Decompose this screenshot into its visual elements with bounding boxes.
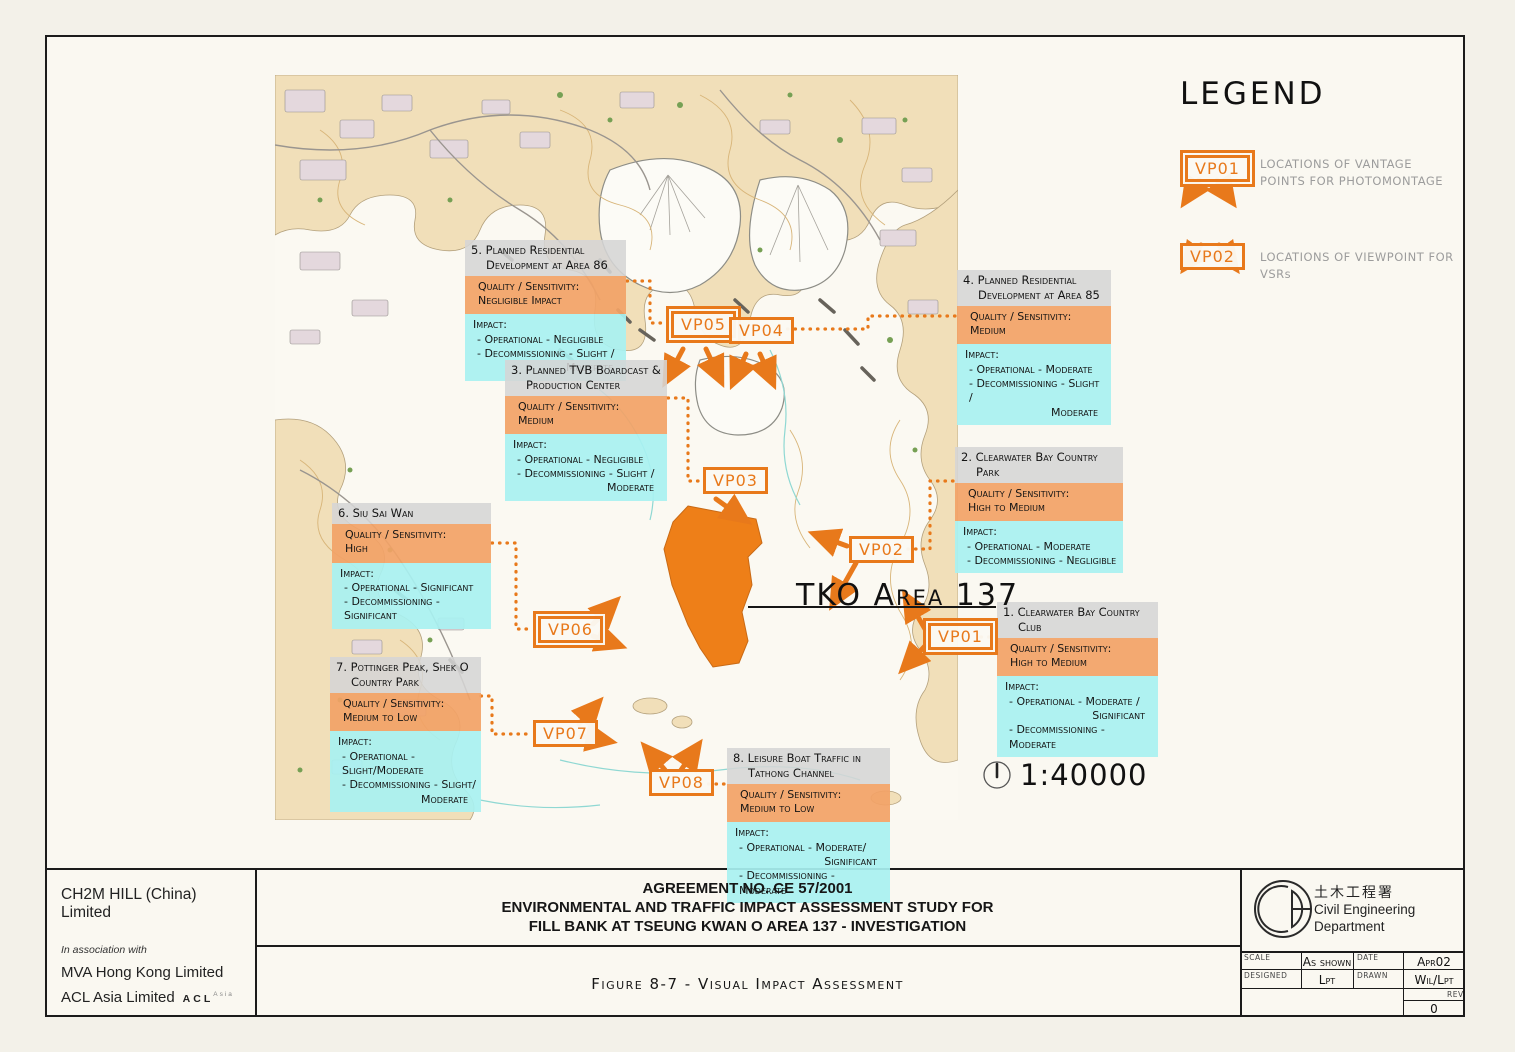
viewpoint-sample-icon: VP02 <box>1180 243 1260 284</box>
callout-area-85: 4. Planned Residential Development at Ar… <box>957 270 1111 425</box>
rev-field-value: 0 <box>1403 1002 1465 1016</box>
callout-clearwater-park: 2. Clearwater Bay Country Park Quality /… <box>955 447 1123 573</box>
acl-logo: ACL <box>183 993 214 1005</box>
vantage-point-marker-vp06: VP06 <box>533 611 608 648</box>
agreement-line-1: AGREEMENT NO. CE 57/2001 <box>255 880 1240 899</box>
partner-mva: MVA Hong Kong Limited <box>61 964 245 981</box>
callout-title: 2. Clearwater Bay Country Park <box>955 447 1123 483</box>
ced-table-col-2 <box>1353 951 1354 988</box>
consultant-name: CH2M HILL (China) Limited <box>61 886 245 922</box>
rev-cell-rule <box>1403 1000 1465 1001</box>
callout-quality: Quality / Sensitivity: Medium <box>505 396 667 435</box>
callout-impact: Impact: - Operational - Significant - De… <box>332 563 491 629</box>
callout-quality: Quality / Sensitivity: High to Medium <box>997 638 1158 677</box>
date-field-label: DATE <box>1357 953 1379 962</box>
ced-table-rule-3 <box>1240 988 1465 989</box>
date-field-value: Apr02 <box>1403 955 1465 969</box>
drawn-field-label: DRAWN <box>1357 971 1388 980</box>
legend-item-vsr: VP02 LOCATIONS OF VIEWPOINT FOR VSRs <box>1180 243 1455 284</box>
rev-field-label: REV <box>1447 990 1464 999</box>
callout-quality: Quality / Sensitivity: Negligible Impact <box>465 276 626 315</box>
callout-impact: Impact: - Operational - Slight/Moderate … <box>330 731 481 811</box>
viewpoint-marker-vp04: VP04 <box>729 317 794 344</box>
callout-clearwater-club: 1. Clearwater Bay Country Club Quality /… <box>997 602 1158 757</box>
scale-field-label: SCALE <box>1244 953 1271 962</box>
callout-title: 6. Siu Sai Wan <box>332 503 491 524</box>
title-block-center-rule <box>255 945 1240 947</box>
callout-pottinger-peak: 7. Pottinger Peak, Shek O Country Park Q… <box>330 657 481 812</box>
agreement-title: AGREEMENT NO. CE 57/2001 ENVIRONMENTAL A… <box>255 880 1240 936</box>
map-scale-text: 1:40000 <box>1020 758 1147 792</box>
legend-item-photomontage: VP01 LOCATIONS OF VANTAGE POINTS FOR PHO… <box>1180 150 1455 191</box>
callout-impact: Impact: - Operational - Negligible - Dec… <box>505 434 667 500</box>
legend-item-label: LOCATIONS OF VANTAGE POINTS FOR PHOTOMON… <box>1260 150 1455 191</box>
callout-title: 8. Leisure Boat Traffic in Tathong Chann… <box>727 748 890 784</box>
consultant-block: CH2M HILL (China) Limited In association… <box>45 868 255 1017</box>
callout-title: 4. Planned Residential Development at Ar… <box>957 270 1111 306</box>
tko-area-137-label: TKO Area 137 <box>796 578 1019 613</box>
association-note: In association with <box>61 944 245 956</box>
viewpoint-marker-vp07: VP07 <box>533 720 598 747</box>
callout-title: 7. Pottinger Peak, Shek O Country Park <box>330 657 481 693</box>
viewpoint-marker-vp08: VP08 <box>649 769 714 796</box>
figure-caption: Figure 8-7 - Visual Impact Assessment <box>255 975 1240 993</box>
scale-field-value: As shown <box>1301 955 1353 969</box>
acl-logo-sub: Asia <box>213 991 234 998</box>
callout-quality: Quality / Sensitivity: Medium <box>957 306 1111 345</box>
department-name-chinese: 土木工程署 <box>1314 882 1415 902</box>
agreement-line-3: FILL BANK AT TSEUNG KWAN O AREA 137 - IN… <box>255 918 1240 937</box>
callout-quality: Quality / Sensitivity: Medium to Low <box>727 784 890 823</box>
agreement-line-2: ENVIRONMENTAL AND TRAFFIC IMPACT ASSESSM… <box>255 899 1240 918</box>
department-name-english-1: Civil Engineering <box>1314 902 1415 919</box>
vantage-point-sample-icon: VP01 <box>1180 150 1260 191</box>
drawing-page: { "legend": { "title": "LEGEND", "items"… <box>0 0 1515 1052</box>
ced-block: 土木工程署 Civil Engineering Department <box>1240 868 1465 951</box>
callout-title: 5. Planned Residential Development at Ar… <box>465 240 626 276</box>
callout-siu-sai-wan: 6. Siu Sai Wan Quality / Sensitivity: Hi… <box>332 503 491 629</box>
vantage-point-marker-vp01: VP01 <box>923 618 998 655</box>
legend-title: LEGEND <box>1180 76 1455 112</box>
designed-field-label: DESIGNED <box>1244 971 1287 980</box>
callout-quality: Quality / Sensitivity: High <box>332 524 491 563</box>
callout-impact: Impact: - Operational - Moderate - Decom… <box>955 521 1123 573</box>
department-name-english-2: Department <box>1314 919 1415 936</box>
designed-field-value: Lpt <box>1301 973 1353 987</box>
callout-quality: Quality / Sensitivity: High to Medium <box>955 483 1123 522</box>
callout-title: 3. Planned TVB Boardcast & Production Ce… <box>505 360 667 396</box>
callout-impact: Impact: - Operational - Moderate - Decom… <box>957 344 1111 424</box>
callout-impact: Impact: - Operational - Moderate / Signi… <box>997 676 1158 756</box>
partner-acl: ACL Asia LimitedACLAsia <box>61 989 245 1006</box>
legend: LEGEND VP01 LOCATIONS OF VANTAGE POINTS … <box>1180 76 1455 335</box>
viewpoint-marker-vp03: VP03 <box>703 467 768 494</box>
drawn-field-value: Wil/Lpt <box>1403 973 1465 987</box>
viewpoint-marker-vp02: VP02 <box>849 536 914 563</box>
legend-item-label: LOCATIONS OF VIEWPOINT FOR VSRs <box>1260 243 1455 284</box>
callout-quality: Quality / Sensitivity: Medium to Low <box>330 693 481 732</box>
callout-tvb-center: 3. Planned TVB Boardcast & Production Ce… <box>505 360 667 501</box>
callout-title: 1. Clearwater Bay Country Club <box>997 602 1158 638</box>
department-name: 土木工程署 Civil Engineering Department <box>1314 882 1415 936</box>
